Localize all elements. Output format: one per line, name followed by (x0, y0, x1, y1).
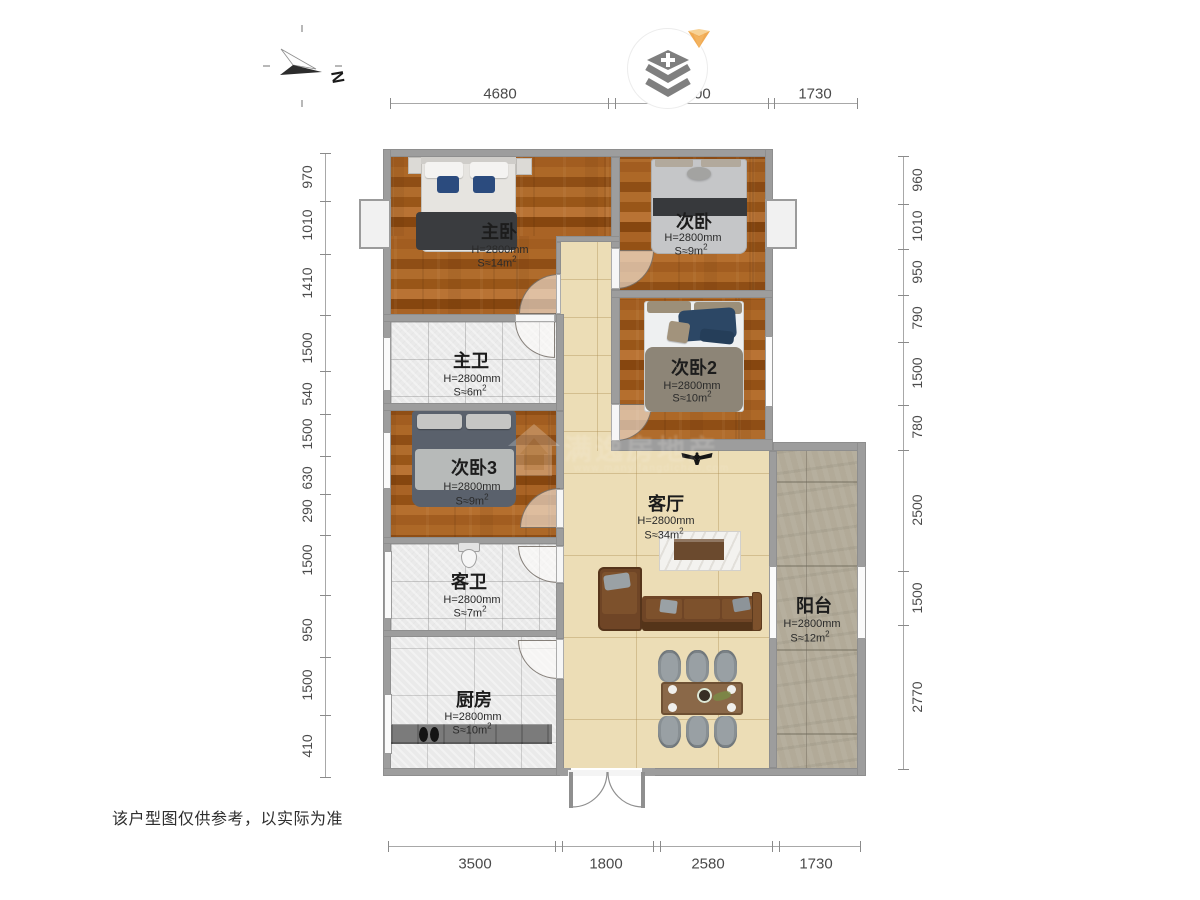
svg-text:N: N (327, 69, 348, 84)
